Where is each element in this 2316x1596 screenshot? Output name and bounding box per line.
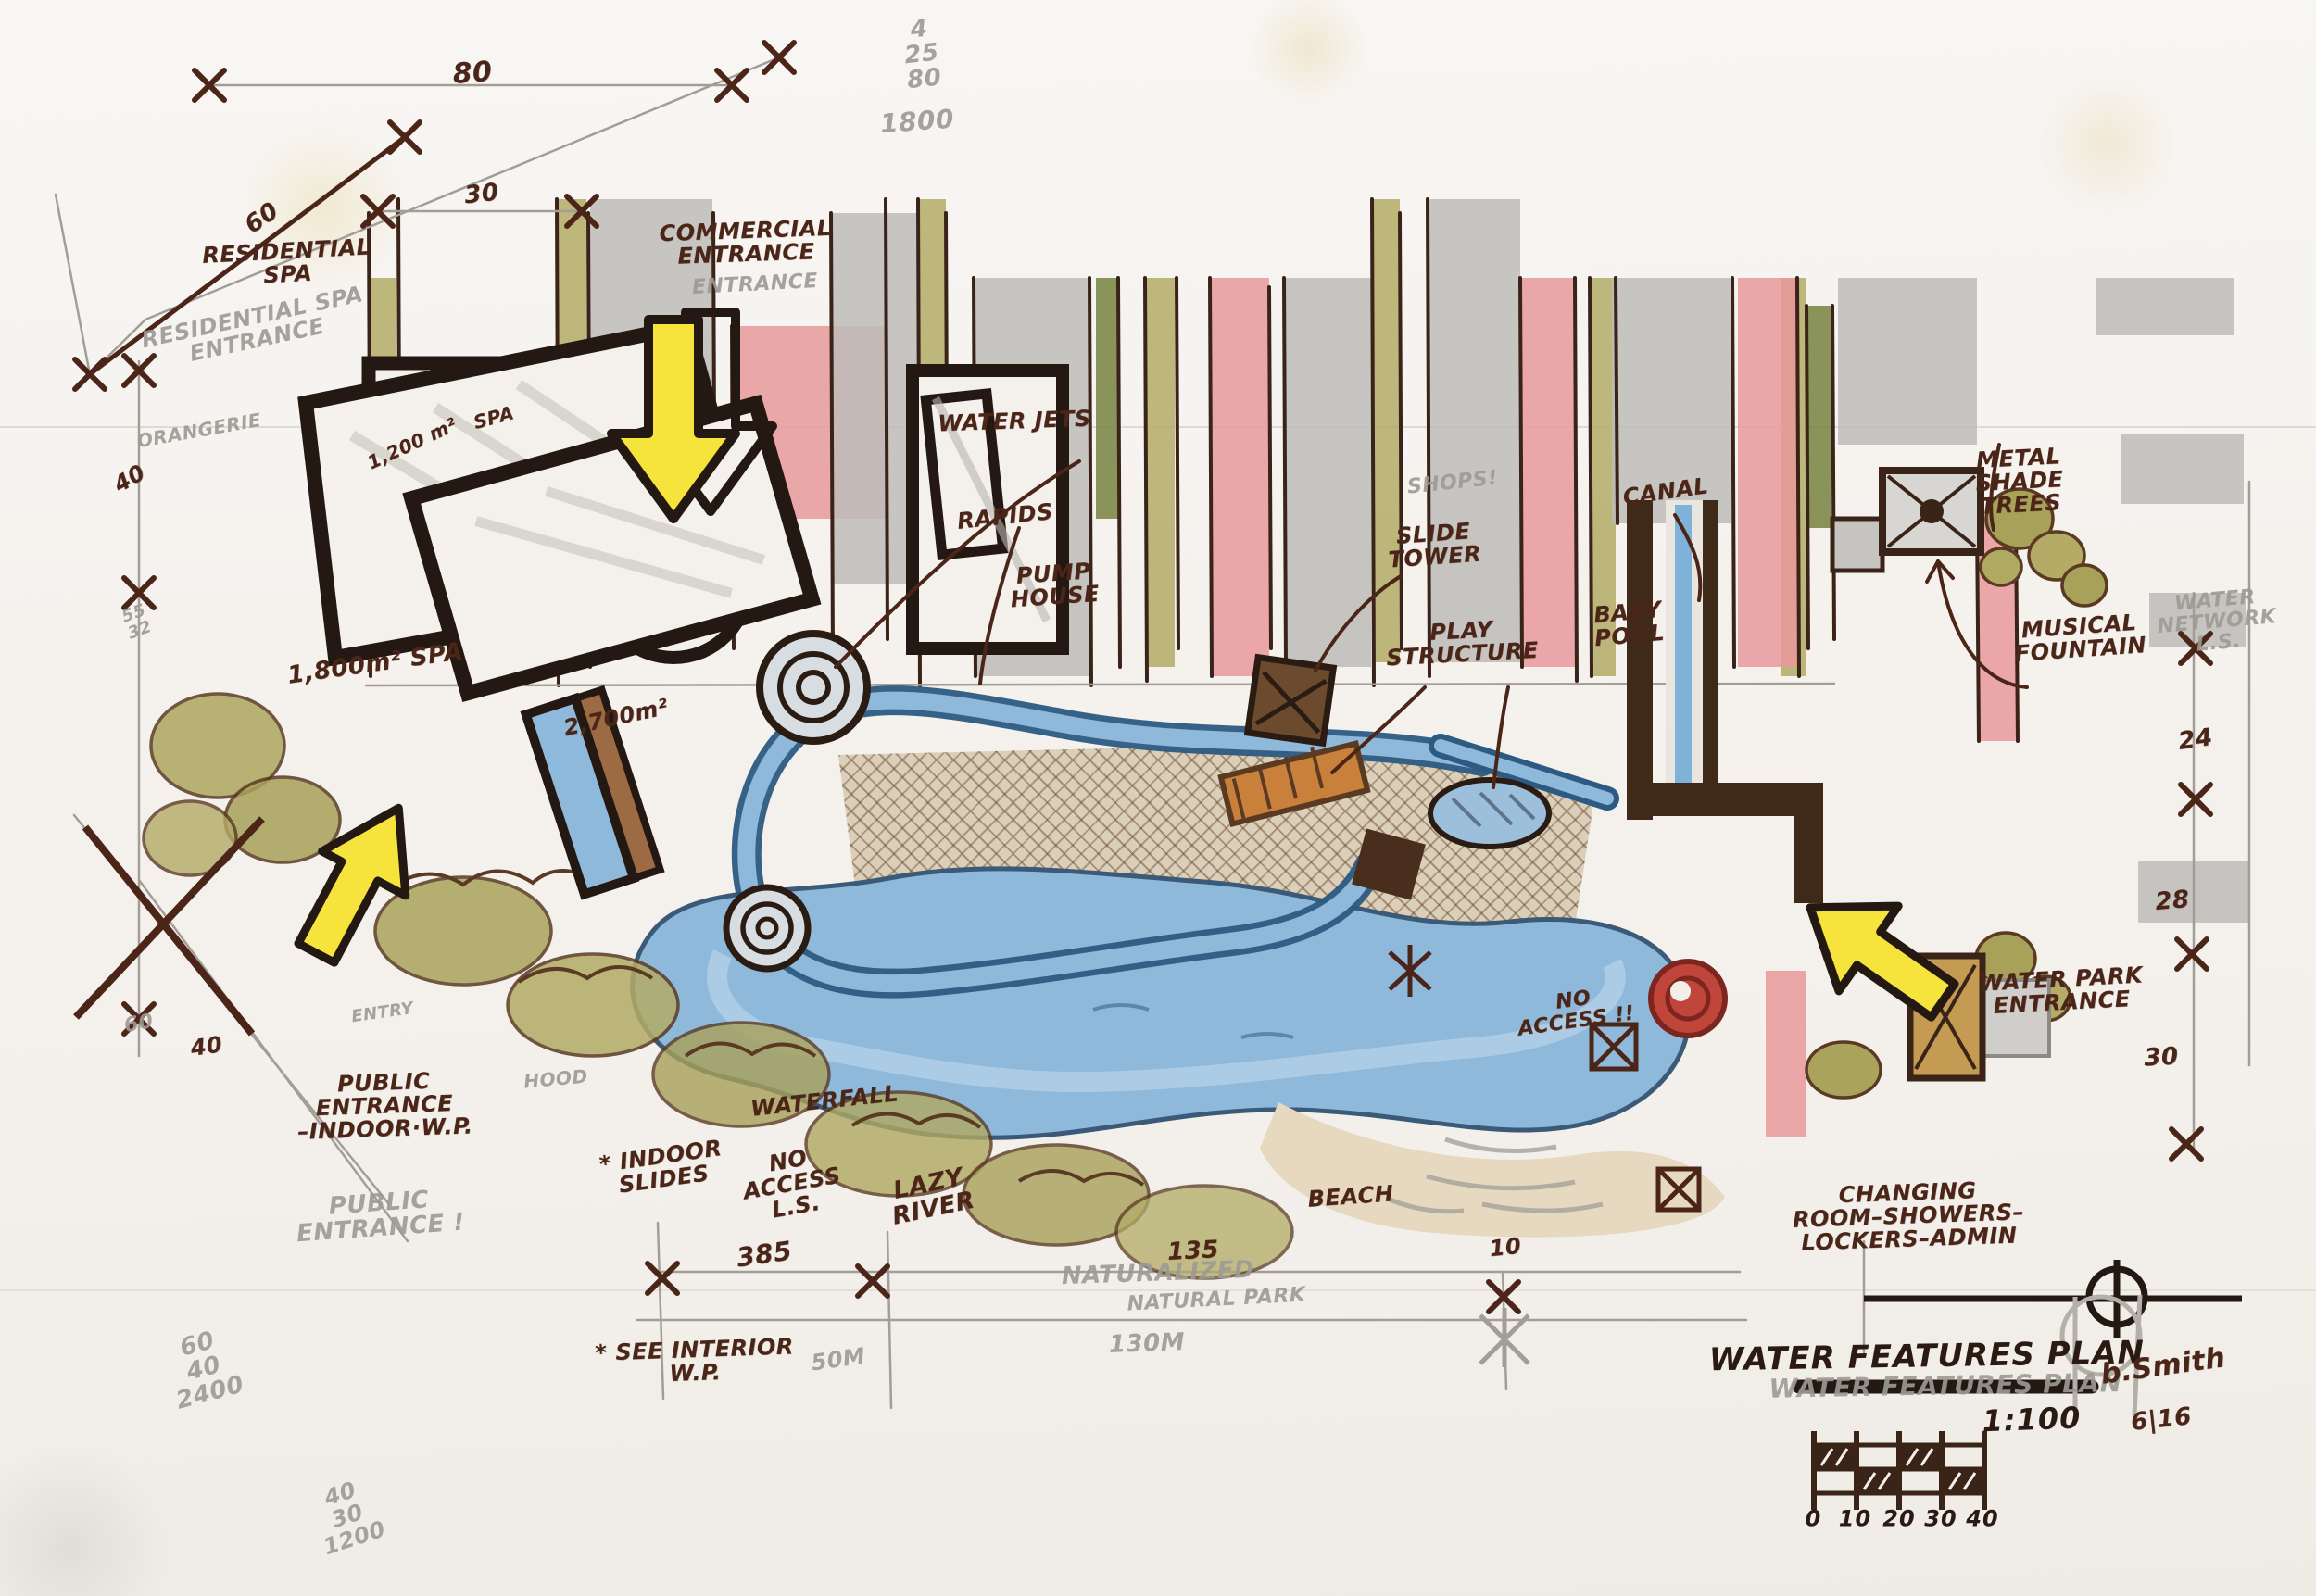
- scale-bar: [1814, 1431, 1984, 1510]
- slide-exit-coil: [726, 887, 808, 969]
- canal: [1627, 500, 1823, 903]
- plan-overlay: [0, 0, 2316, 1596]
- musical-fountain: [1832, 471, 1981, 571]
- sketch-sheet: 804258018003060RESIDENTIALSPARESIDENTIAL…: [0, 0, 2316, 1596]
- play-structure: [1221, 658, 1512, 900]
- spa-keyhole-building-2: [913, 371, 1063, 648]
- red-spiral-feature: [1651, 961, 1725, 1036]
- title-block: [1799, 1260, 2242, 1415]
- baby-pool-shape: [1430, 780, 1549, 847]
